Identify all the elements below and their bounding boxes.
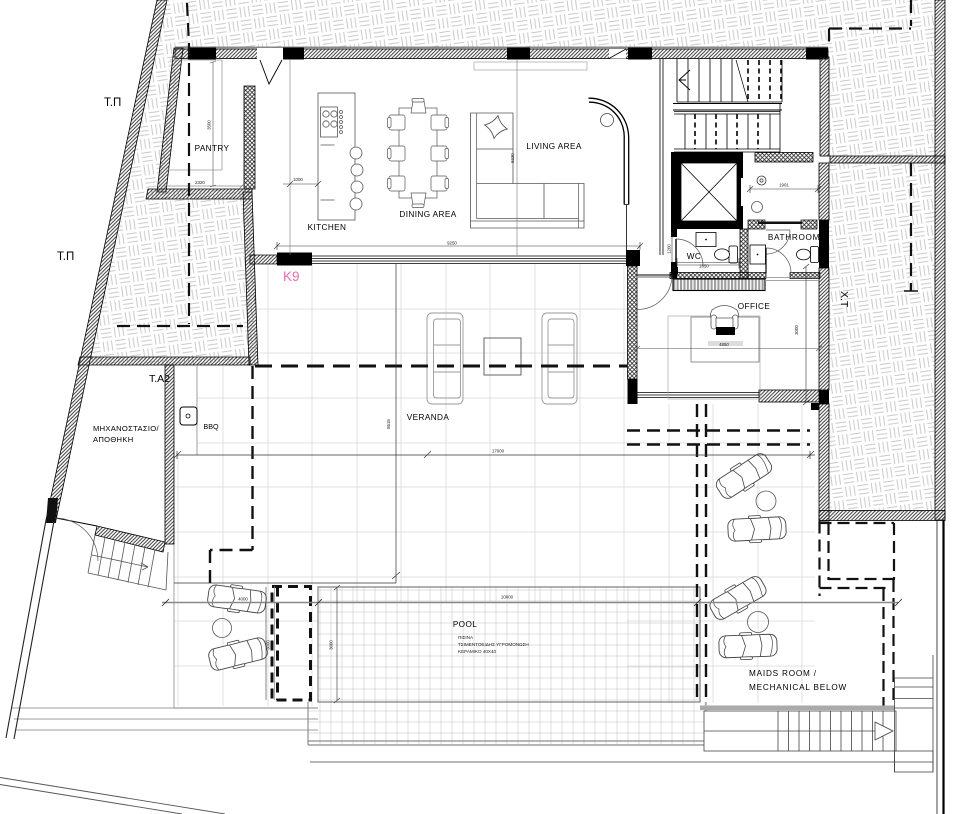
svg-text:4000: 4000 — [238, 597, 248, 602]
svg-text:Τ.Π: Τ.Π — [57, 251, 74, 263]
svg-text:LIVING AREA: LIVING AREA — [526, 142, 582, 151]
svg-text:2320: 2320 — [195, 180, 205, 185]
svg-text:1000: 1000 — [293, 177, 303, 182]
svg-text:5330: 5330 — [510, 153, 515, 163]
svg-text:BATHROOM: BATHROOM — [768, 233, 820, 242]
svg-text:3000: 3000 — [329, 640, 334, 650]
svg-text:1650: 1650 — [699, 264, 709, 269]
svg-text:17000: 17000 — [492, 449, 505, 454]
svg-text:Τ.Π: Τ.Π — [104, 97, 121, 109]
svg-text:ΑΠΟΘΗΚΗ: ΑΠΟΘΗΚΗ — [93, 435, 134, 444]
svg-text:ΠΙΣΙΝΑ: ΠΙΣΙΝΑ — [458, 635, 474, 640]
svg-text:Χ.Τ: Χ.Τ — [838, 291, 850, 308]
svg-text:3000: 3000 — [794, 325, 799, 335]
svg-text:3000: 3000 — [266, 640, 271, 650]
svg-text:OFFICE: OFFICE — [738, 302, 771, 311]
svg-text:ΚΕΡΑΜΙΚΟ 40Χ40: ΚΕΡΑΜΙΚΟ 40Χ40 — [458, 649, 497, 654]
svg-text:1901: 1901 — [779, 183, 789, 188]
svg-text:K9: K9 — [283, 269, 300, 284]
svg-text:9250: 9250 — [447, 241, 457, 246]
svg-text:PANTRY: PANTRY — [195, 144, 230, 153]
svg-text:ΤΣΙΜΕΝΤΟΕΙΔΗΣ ΥΓΡΟΜΟΝΩΣΗ: ΤΣΙΜΕΝΤΟΕΙΔΗΣ ΥΓΡΟΜΟΝΩΣΗ — [458, 642, 529, 647]
svg-text:8515: 8515 — [386, 419, 391, 429]
svg-text:BBQ: BBQ — [203, 422, 219, 431]
svg-text:10000: 10000 — [501, 595, 514, 600]
svg-text:Τ.Α2: Τ.Α2 — [149, 373, 170, 385]
svg-text:4850: 4850 — [719, 342, 729, 347]
svg-text:MAIDS ROOM /: MAIDS ROOM / — [749, 669, 817, 678]
svg-text:WC: WC — [687, 252, 701, 261]
svg-text:KITCHEN: KITCHEN — [308, 223, 347, 232]
svg-text:DINING AREA: DINING AREA — [399, 210, 456, 219]
svg-text:VERANDA: VERANDA — [407, 413, 450, 422]
svg-text:POOL: POOL — [453, 620, 477, 629]
svg-text:MECHANICAL BELOW: MECHANICAL BELOW — [749, 683, 847, 692]
svg-text:1200: 1200 — [667, 244, 672, 254]
svg-text:3500: 3500 — [207, 120, 212, 130]
svg-text:ΜΗΧΑΝΟΣΤΑΣΙΟ/: ΜΗΧΑΝΟΣΤΑΣΙΟ/ — [93, 424, 159, 433]
